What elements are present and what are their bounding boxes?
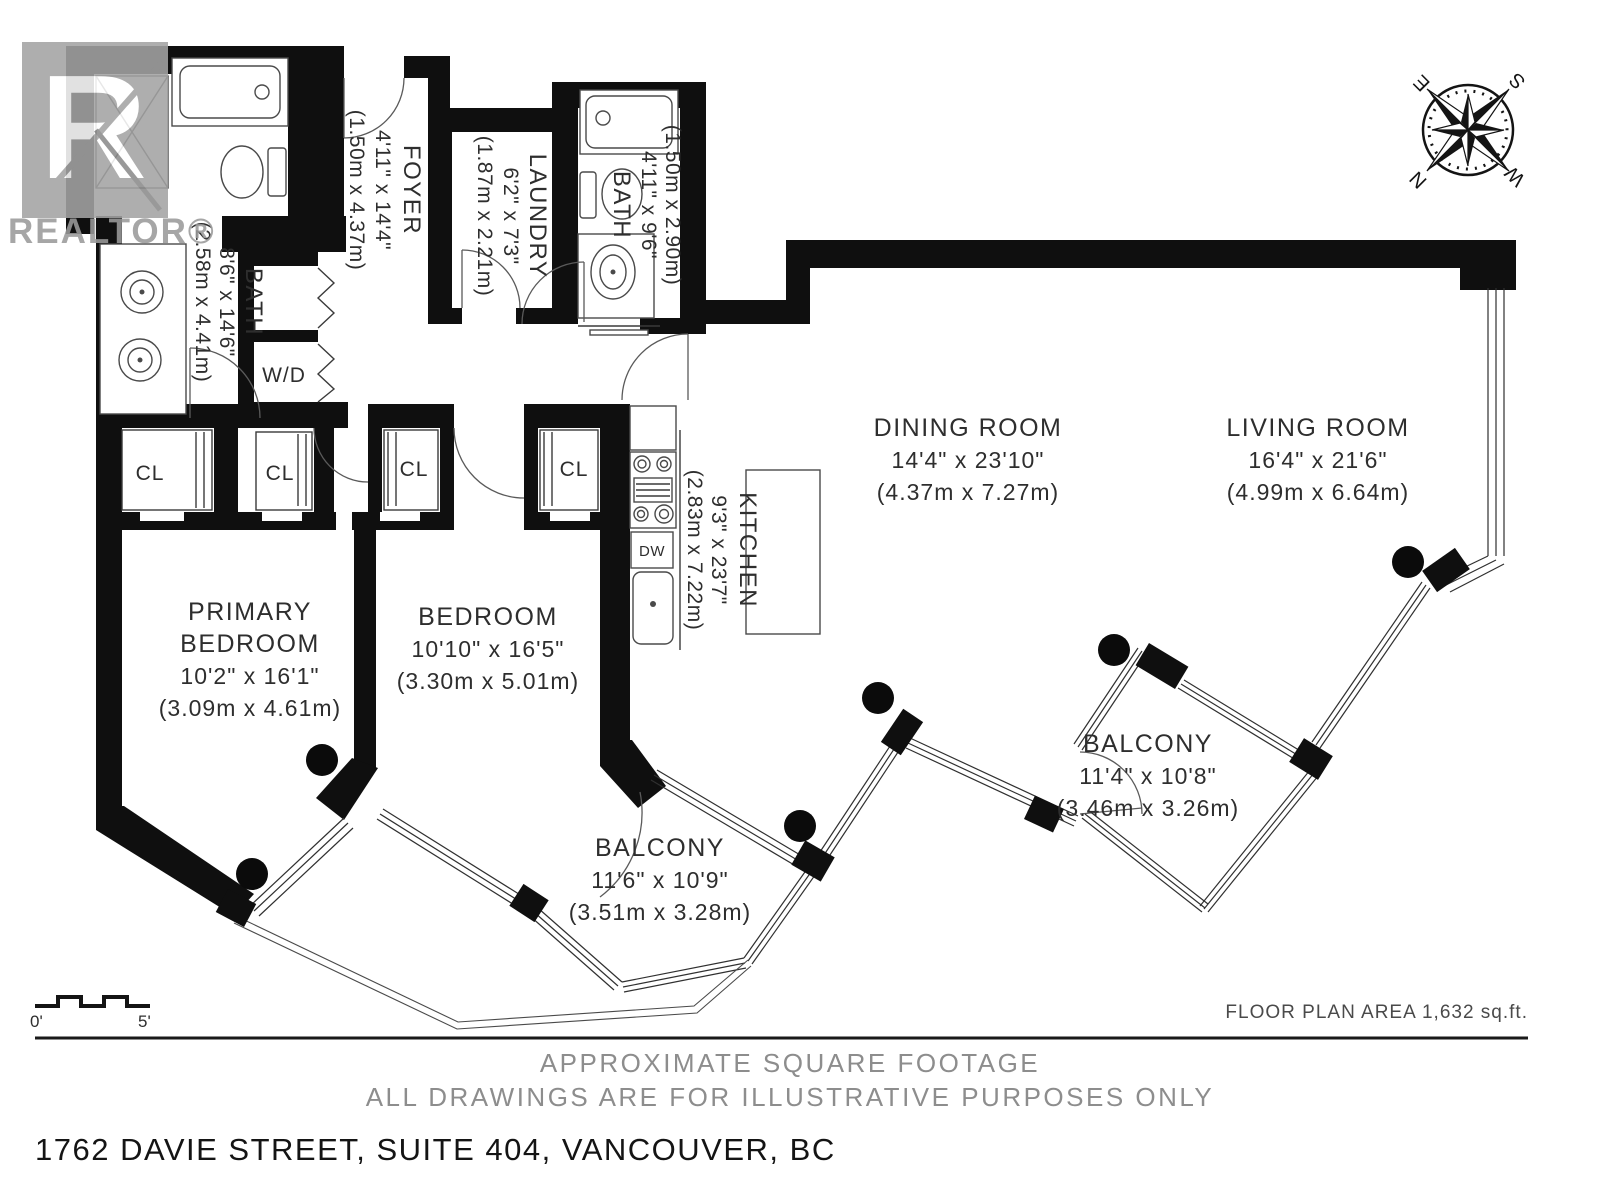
toilet (221, 146, 286, 198)
counter (630, 406, 676, 450)
bath-second-label: BATH (608, 171, 635, 239)
balcony-upper-dim-metric: (3.46m x 3.26m) (1057, 795, 1239, 821)
dishwasher-label: DW (639, 543, 665, 560)
living-room-dim-imperial: 16'4" x 21'6" (1248, 447, 1387, 473)
railing-posts (216, 548, 1470, 927)
closet-label-4: CL (560, 458, 589, 481)
dining-room-dim-metric: (4.37m x 7.27m) (877, 479, 1059, 505)
living-room-dim-metric: (4.99m x 6.64m) (1227, 479, 1409, 505)
closet-label-2: CL (266, 462, 295, 485)
bedroom-dim-imperial: 10'10" x 16'5" (412, 636, 565, 662)
floor-plan-drawing: FOYER 4'11" x 14'4" (1.50m x 4.37m) BATH… (0, 0, 1600, 1200)
scale-start-label: 0' (30, 1012, 43, 1031)
bedroom-label: BEDROOM (418, 603, 558, 631)
dining-room-label: DINING ROOM (874, 414, 1063, 442)
primary-bedroom-label-line1: PRIMARY (188, 598, 312, 626)
balcony-lower-dim-imperial: 11'6" x 10'9" (591, 867, 728, 893)
disclaimer-line1: APPROXIMATE SQUARE FOOTAGE (540, 1048, 1040, 1078)
dining-room-dim-imperial: 14'4" x 23'10" (892, 447, 1045, 473)
accordion-door (318, 268, 334, 328)
laundry-label: LAUNDRY (524, 154, 551, 279)
roofline (234, 916, 751, 1029)
balcony-lower-dim-metric: (3.51m x 3.28m) (569, 899, 751, 925)
compass-rose: N E S W (1359, 21, 1578, 240)
double-vanity-sinks (100, 244, 186, 414)
scale-end-label: 5' (138, 1012, 151, 1031)
kitchen-dim-metric: (2.83m x 7.22m) (683, 470, 706, 630)
laundry-dim-metric: (1.87m x 2.21m) (473, 136, 496, 296)
address-label: 1762 DAVIE STREET, SUITE 404, VANCOUVER,… (35, 1132, 836, 1167)
balcony-lower-label: BALCONY (595, 834, 725, 862)
bath-second-dim-imperial: 4'11" x 9'6" (637, 151, 660, 259)
foyer-dim-metric: (1.50m x 4.37m) (345, 110, 368, 270)
closet-label-3: CL (400, 458, 429, 481)
primary-bedroom-dim-metric: (3.09m x 4.61m) (159, 695, 341, 721)
living-room-label: LIVING ROOM (1226, 414, 1409, 442)
foyer-label: FOYER (398, 145, 425, 235)
primary-bedroom-label-line2: BEDROOM (180, 630, 320, 658)
disclaimer-line2: ALL DRAWINGS ARE FOR ILLUSTRATIVE PURPOS… (366, 1082, 1215, 1112)
stove (630, 452, 676, 528)
kitchen-dim-imperial: 9'3" x 23'7" (707, 495, 730, 605)
foyer-dim-imperial: 4'11" x 14'4" (371, 130, 394, 250)
bath-main-label: BATH (240, 268, 267, 336)
window-lines (250, 288, 1504, 916)
balcony-upper-dim-imperial: 11'4" x 10'8" (1079, 763, 1216, 789)
closet-label-1: CL (136, 462, 165, 485)
floor-plan-area-label: FLOOR PLAN AREA 1,632 sq.ft. (1225, 1002, 1528, 1023)
accordion-door (318, 344, 334, 402)
washer-dryer-label: W/D (262, 364, 306, 387)
balcony-upper-label: BALCONY (1083, 730, 1213, 758)
floor-plan-page: FOYER 4'11" x 14'4" (1.50m x 4.37m) BATH… (0, 0, 1600, 1200)
kitchen-label: KITCHEN (734, 492, 761, 608)
laundry-dim-imperial: 6'2" x 7'3" (499, 167, 522, 264)
kitchen-sink (633, 572, 673, 644)
bath-main-dim-imperial: 8'6" x 14'6" (215, 247, 238, 357)
primary-bedroom-dim-imperial: 10'2" x 16'1" (180, 663, 319, 689)
bathtub (172, 58, 288, 126)
bath-second-dim-metric: (1.50m x 2.90m) (661, 125, 684, 285)
bedroom-dim-metric: (3.30m x 5.01m) (397, 668, 579, 694)
realtor-logo-text: REALTOR® (8, 212, 216, 251)
scale-bar: 0' 5' (30, 997, 151, 1031)
